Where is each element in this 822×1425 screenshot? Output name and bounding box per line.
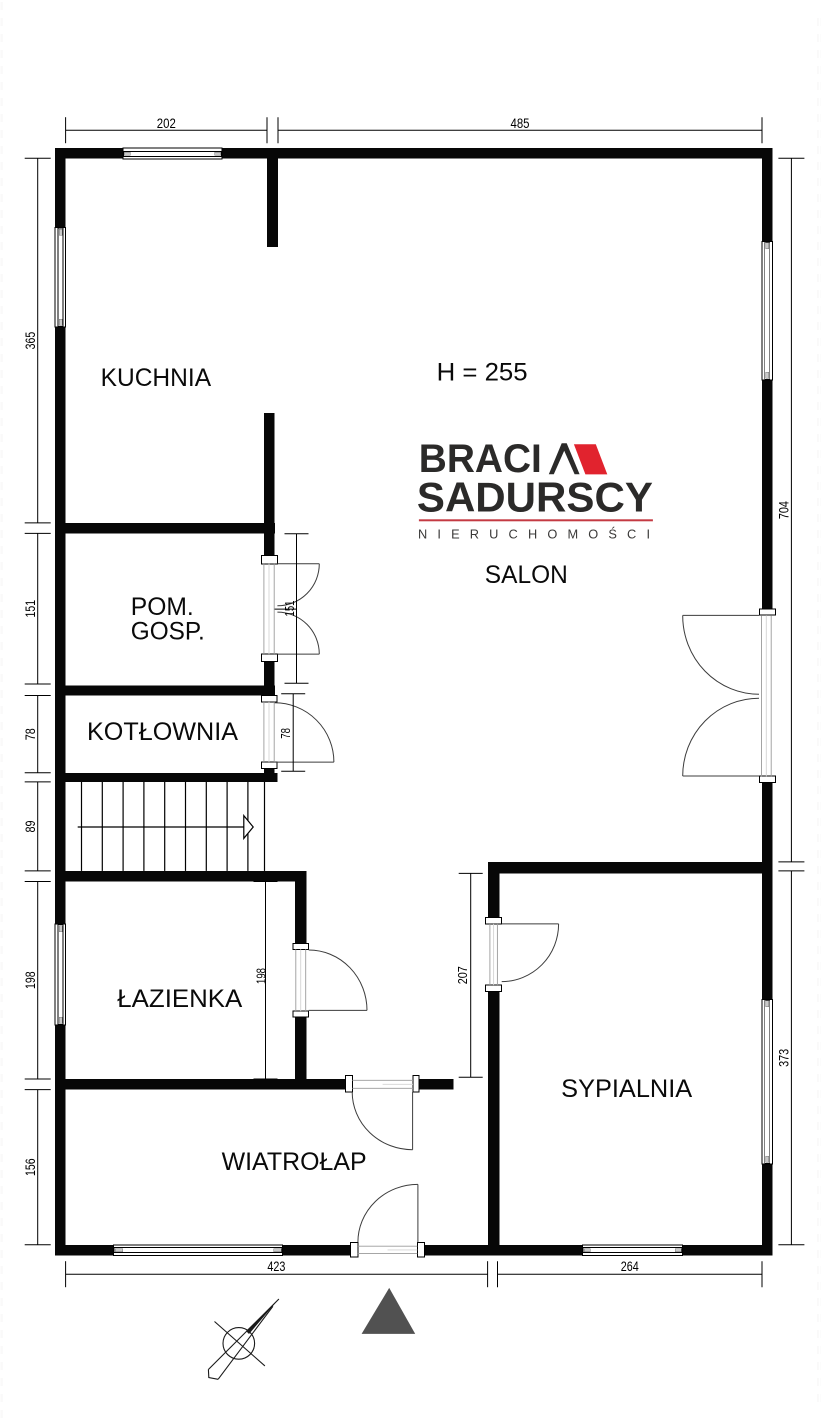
svg-text:704: 704 <box>777 501 792 519</box>
svg-text:151: 151 <box>23 600 38 618</box>
svg-text:NIERUCHOMOŚCI: NIERUCHOMOŚCI <box>418 526 650 541</box>
svg-text:KUCHNIA: KUCHNIA <box>101 364 212 392</box>
svg-text:373: 373 <box>777 1049 792 1067</box>
svg-text:423: 423 <box>267 1259 285 1274</box>
svg-text:WIATROŁAP: WIATROŁAP <box>222 1148 367 1176</box>
svg-text:485: 485 <box>511 116 530 131</box>
svg-text:SADURSCY: SADURSCY <box>417 473 653 520</box>
svg-text:89: 89 <box>23 821 38 833</box>
svg-text:H = 255: H = 255 <box>437 359 528 387</box>
svg-text:151: 151 <box>283 600 297 616</box>
svg-text:202: 202 <box>157 116 176 131</box>
svg-text:264: 264 <box>621 1259 639 1274</box>
svg-text:365: 365 <box>23 332 38 350</box>
svg-text:GOSP.: GOSP. <box>131 618 205 646</box>
svg-text:207: 207 <box>456 966 470 984</box>
svg-text:78: 78 <box>23 728 38 740</box>
svg-text:198: 198 <box>254 968 268 984</box>
svg-text:198: 198 <box>23 971 38 989</box>
svg-text:ŁAZIENKA: ŁAZIENKA <box>117 985 242 1013</box>
svg-text:156: 156 <box>23 1158 38 1176</box>
svg-text:SYPIALNIA: SYPIALNIA <box>561 1075 692 1103</box>
svg-text:SALON: SALON <box>485 561 568 589</box>
svg-text:KOTŁOWNIA: KOTŁOWNIA <box>87 718 238 746</box>
svg-text:78: 78 <box>279 728 293 739</box>
